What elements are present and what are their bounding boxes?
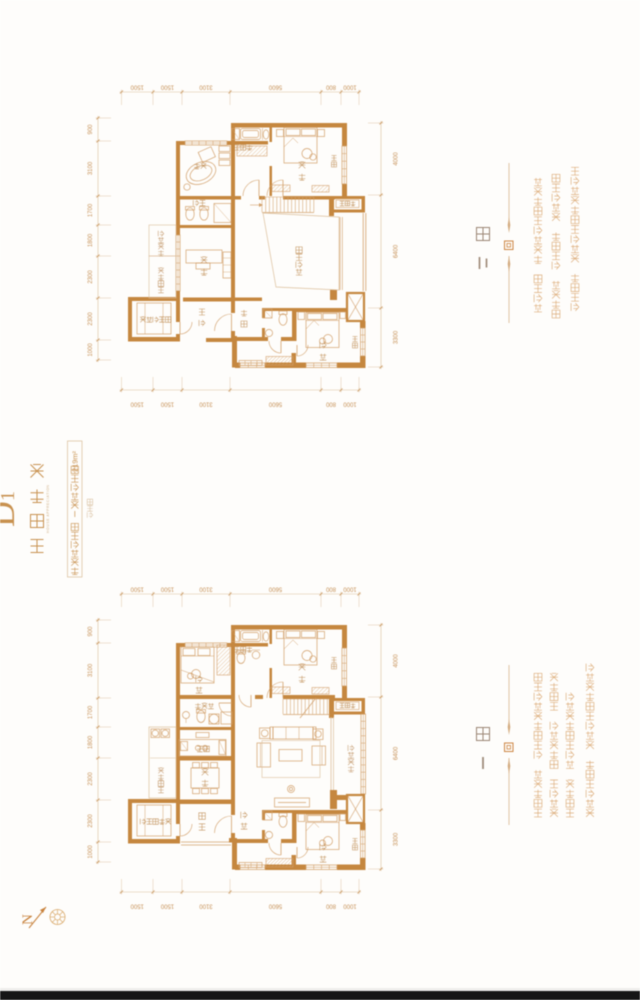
svg-text:2300: 2300 (88, 312, 94, 326)
svg-text:2300: 2300 (88, 814, 94, 828)
svg-text:1000: 1000 (343, 586, 357, 592)
svg-text:3100: 3100 (88, 663, 94, 677)
svg-text:3300: 3300 (394, 330, 400, 344)
svg-text:1800: 1800 (88, 735, 94, 749)
svg-text:1500: 1500 (160, 903, 174, 909)
svg-text:6400: 6400 (394, 244, 400, 258)
svg-text:1800: 1800 (88, 233, 94, 247)
svg-text:5600: 5600 (268, 903, 282, 909)
svg-text:219m²: 219m² (71, 451, 80, 472)
svg-text:1700: 1700 (88, 705, 94, 719)
svg-text:1000: 1000 (343, 84, 357, 90)
svg-text:3100: 3100 (199, 401, 213, 407)
svg-text:1500: 1500 (130, 586, 144, 592)
svg-text:5600: 5600 (268, 84, 282, 90)
svg-text:3100: 3100 (199, 903, 213, 909)
svg-text:800: 800 (325, 84, 336, 90)
svg-text:3100: 3100 (199, 586, 213, 592)
svg-text:900: 900 (88, 626, 94, 637)
svg-text:2300: 2300 (88, 270, 94, 284)
svg-text:4000: 4000 (394, 152, 400, 166)
svg-text:1500: 1500 (130, 903, 144, 909)
svg-text:1500: 1500 (130, 84, 144, 90)
svg-text:800: 800 (325, 401, 336, 407)
svg-text:3300: 3300 (394, 832, 400, 846)
svg-text:5600: 5600 (268, 586, 282, 592)
svg-text:1500: 1500 (130, 401, 144, 407)
svg-text:6400: 6400 (394, 746, 400, 760)
svg-text:1000: 1000 (343, 903, 357, 909)
svg-text:1000: 1000 (343, 401, 357, 407)
svg-text:5600: 5600 (268, 401, 282, 407)
svg-text:1700: 1700 (88, 203, 94, 217)
svg-text:900: 900 (88, 124, 94, 135)
svg-text:N: N (20, 914, 36, 925)
svg-text:1500: 1500 (160, 84, 174, 90)
svg-text:1000: 1000 (88, 343, 94, 357)
svg-text:1500: 1500 (160, 401, 174, 407)
svg-text:800: 800 (325, 586, 336, 592)
svg-text:HOUSE APPRECIATION: HOUSE APPRECIATION (46, 484, 50, 533)
svg-text:800: 800 (325, 903, 336, 909)
svg-text:4000: 4000 (394, 654, 400, 668)
svg-text:3100: 3100 (199, 84, 213, 90)
svg-text:3100: 3100 (88, 161, 94, 175)
svg-text:D1: D1 (0, 491, 22, 527)
svg-text:1000: 1000 (88, 845, 94, 859)
svg-text:2300: 2300 (88, 772, 94, 786)
svg-text:1500: 1500 (160, 586, 174, 592)
